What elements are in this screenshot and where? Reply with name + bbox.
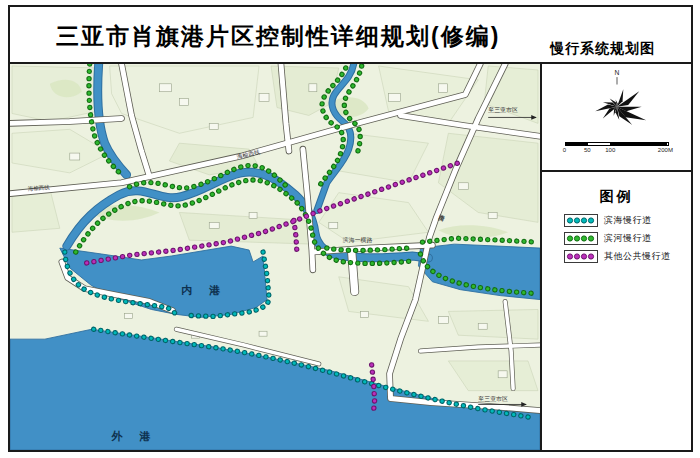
planning-map: 内 港 外 港 海榆西线 海榆西线 滨海路 滨海一横路 至三亚市区 至三亚市区 (10, 64, 540, 450)
outer-port-label: 外 港 (111, 430, 158, 442)
legend-dots-swatch-icon (564, 232, 598, 245)
compass-box: N 0 50 100 2 (542, 64, 691, 172)
scale-tick-100: 100 (605, 147, 615, 153)
scale-tick-0: 0 (563, 147, 566, 153)
legend-item: 其他公共慢行道 (564, 250, 691, 263)
sheet-frame: 三亚市肖旗港片区控制性详细规划(修编) 慢行系统规划图 (8, 5, 693, 452)
content-row: 内 港 外 港 海榆西线 海榆西线 滨海路 滨海一横路 至三亚市区 至三亚市区 (10, 64, 691, 450)
inner-port-label: 内 港 (181, 284, 227, 296)
north-label: N (614, 69, 619, 76)
legend-dots-swatch-icon (564, 250, 598, 263)
legend-dots-swatch-icon (564, 214, 598, 227)
legend-item-label: 滨河慢行道 (604, 232, 652, 245)
legend-panel: 图例 滨海慢行道 滨河慢行道 其他公共慢行道 (542, 172, 691, 450)
binhai-yiheng-road-label: 滨海一横路 (343, 236, 373, 244)
wind-rose-icon: N (579, 66, 655, 140)
scale-tick-50: 50 (584, 147, 591, 153)
legend-items: 滨海慢行道 滨河慢行道 其他公共慢行道 (542, 214, 691, 263)
page: 三亚市肖旗港片区控制性详细规划(修编) 慢行系统规划图 (0, 0, 700, 458)
side-panel: N 0 50 100 2 (542, 64, 691, 450)
to-sanya-bottom-label: 至三亚市区 (478, 395, 508, 402)
scale-bar-segments (565, 142, 669, 146)
map-panel: 内 港 外 港 海榆西线 海榆西线 滨海路 滨海一横路 至三亚市区 至三亚市区 (10, 64, 542, 450)
scale-tick-200: 200M (658, 147, 673, 153)
legend-item-label: 滨海慢行道 (604, 214, 652, 227)
scale-bar-labels: 0 50 100 200M (565, 147, 669, 156)
legend-item: 滨海慢行道 (564, 214, 691, 227)
legend-item: 滨河慢行道 (564, 232, 691, 245)
legend-title: 图例 (542, 188, 691, 206)
title-bar: 三亚市肖旗港片区控制性详细规划(修编) 慢行系统规划图 (10, 7, 691, 64)
scale-bar: 0 50 100 200M (565, 142, 669, 158)
plan-title: 三亚市肖旗港片区控制性详细规划(修编) (56, 21, 500, 52)
map-sheet-title: 慢行系统规划图 (550, 40, 655, 58)
to-sanya-top-label: 至三亚市区 (488, 107, 518, 114)
legend-item-label: 其他公共慢行道 (604, 250, 671, 263)
